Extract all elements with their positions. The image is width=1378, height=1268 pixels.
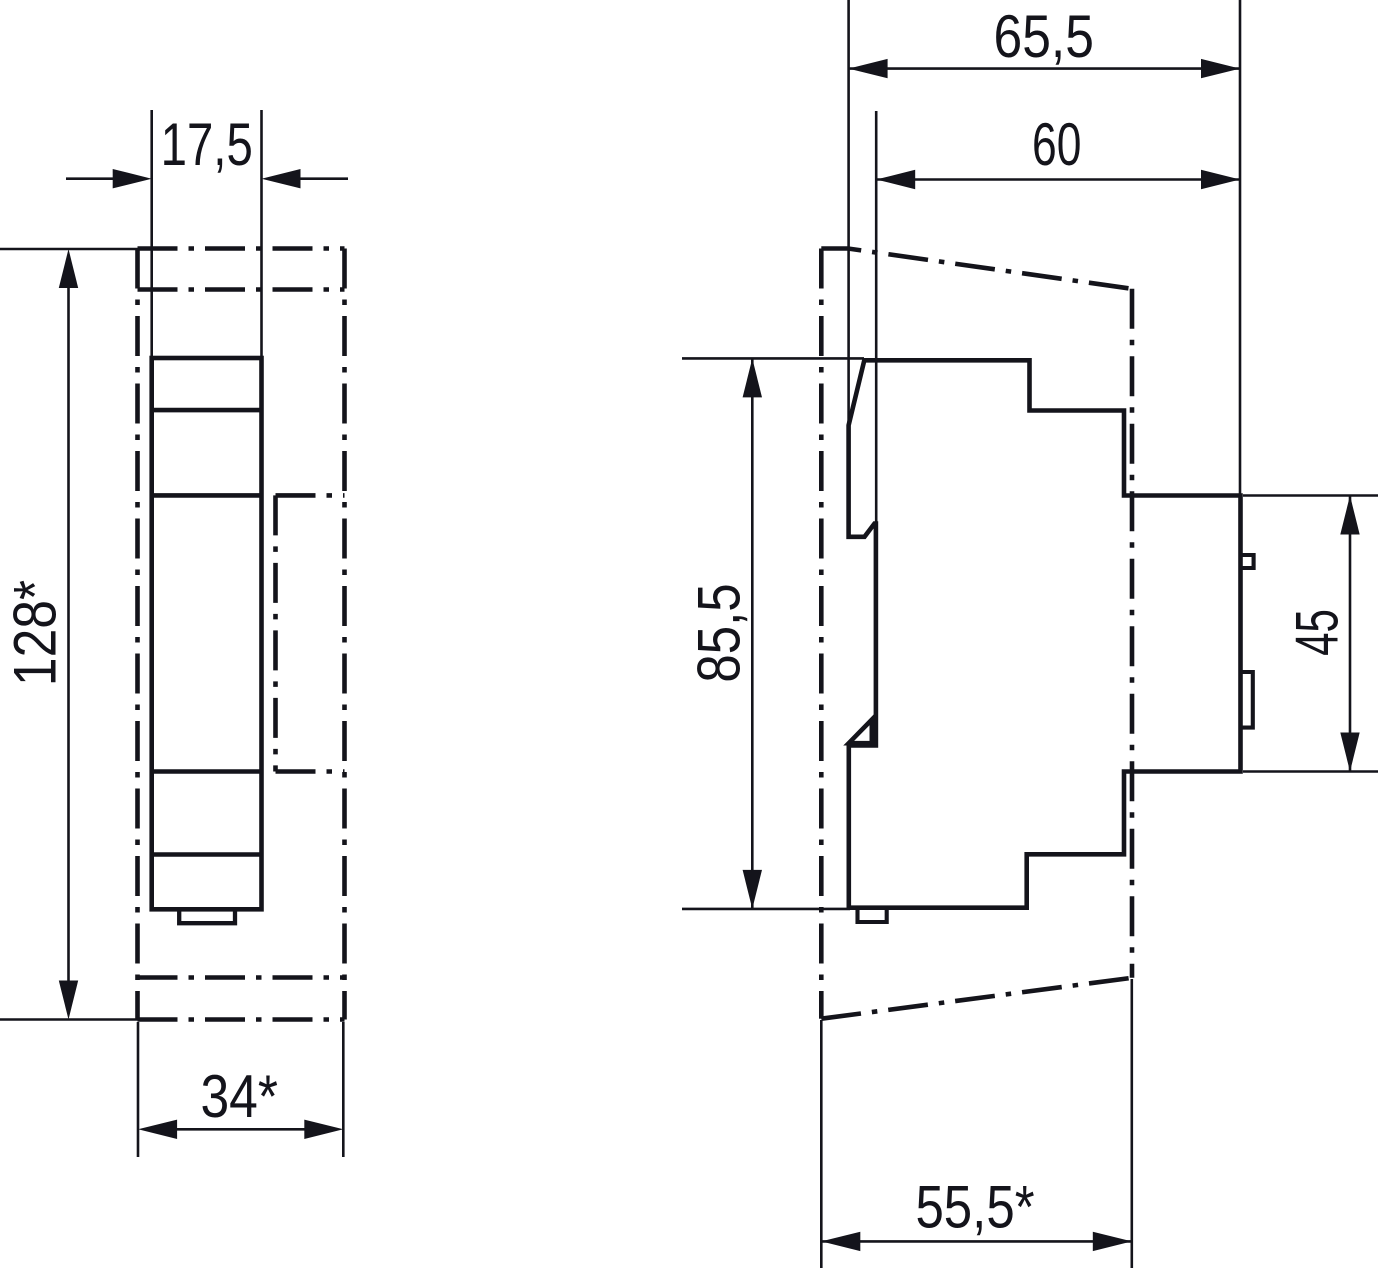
svg-text:65,5: 65,5	[994, 2, 1094, 70]
svg-text:60: 60	[1032, 112, 1081, 179]
svg-text:85,5: 85,5	[686, 583, 753, 682]
svg-text:34*: 34*	[200, 1062, 277, 1130]
svg-text:45: 45	[1283, 609, 1350, 656]
svg-text:128*: 128*	[1, 580, 69, 686]
svg-text:55,5*: 55,5*	[915, 1174, 1034, 1241]
svg-text:17,5: 17,5	[161, 112, 253, 179]
